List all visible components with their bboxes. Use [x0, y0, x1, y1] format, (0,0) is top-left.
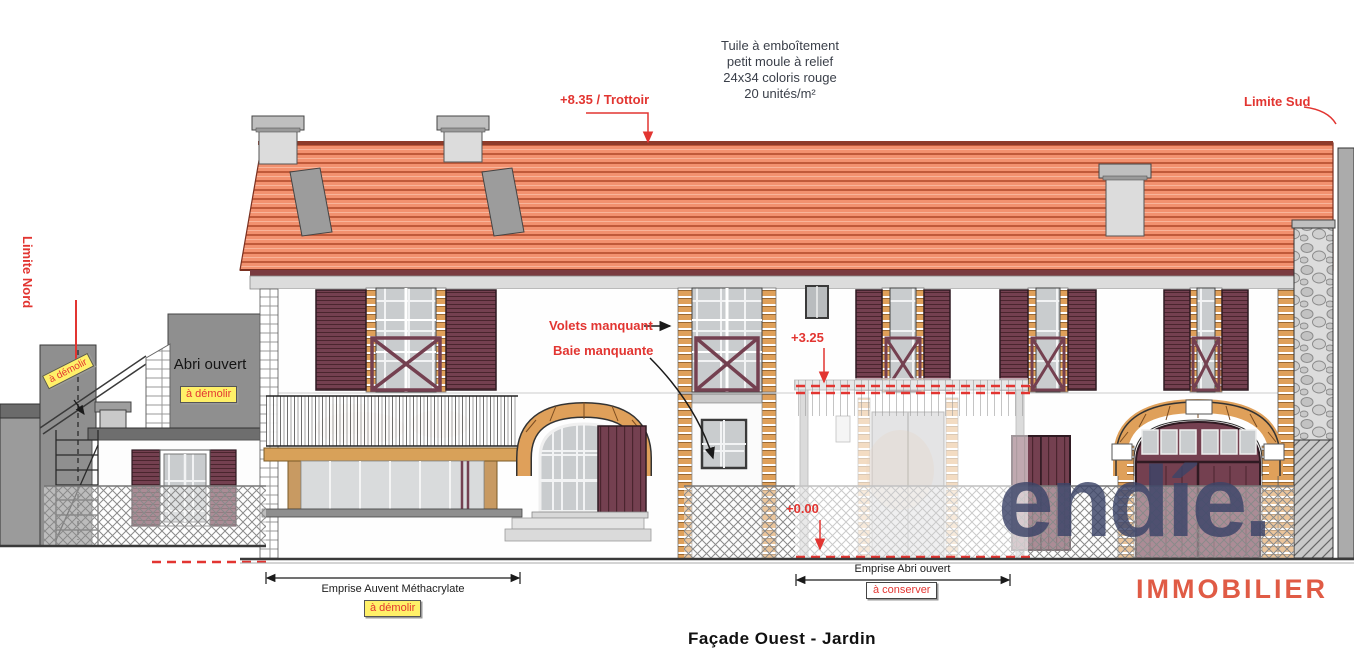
- abri-ouvert-label: Abri ouvert: [156, 356, 264, 373]
- elevation-sheet: Tuile à emboîtement petit moule à relief…: [0, 0, 1354, 653]
- level-floor-label: +3.25: [791, 330, 824, 345]
- stone-pillar: [1292, 220, 1335, 558]
- demolish-tag-annex: à démolir: [180, 386, 237, 403]
- missing-shutters-label: Volets manquant: [549, 318, 653, 333]
- roof-tile-note-line2: petit moule à relief: [700, 54, 860, 70]
- roof-tile-note: Tuile à emboîtement petit moule à relief…: [700, 38, 860, 102]
- missing-bay-label: Baie manquante: [553, 343, 653, 358]
- roof-tile-note-line4: 20 unités/m²: [700, 86, 860, 102]
- window-upper-5: [1164, 288, 1248, 392]
- awning-extent-label: Emprise Auvent Méthacrylate: [263, 583, 523, 595]
- chimney-right: [1099, 164, 1151, 236]
- neighbour-wall: [1338, 148, 1354, 558]
- roof-tile-note-line3: 24x34 coloris rouge: [700, 70, 860, 86]
- drawing-title: Façade Ouest - Jardin: [600, 629, 964, 649]
- boundary-north-label: Limite Nord: [20, 236, 35, 326]
- arched-window: [505, 402, 651, 541]
- window-upper-3: [856, 288, 950, 392]
- agency-logo-subtitle: IMMOBILIER: [1136, 574, 1328, 605]
- chimney-middle: [437, 116, 489, 162]
- veranda-awning: [262, 396, 522, 517]
- attic-vent: [806, 286, 828, 318]
- window-upper-4: [1000, 288, 1096, 392]
- keep-tag-shelter: à conserver: [866, 582, 937, 599]
- roof: [240, 141, 1333, 270]
- shelter-extent-label: Emprise Abri ouvert: [795, 563, 1010, 575]
- agency-logo-wordmark: endíe.: [998, 452, 1269, 552]
- window-upper-2-no-shutters: [678, 288, 776, 392]
- fence-left: [44, 486, 266, 546]
- cornice: [250, 270, 1302, 289]
- roof-tile-note-line1: Tuile à emboîtement: [700, 38, 860, 54]
- window-upper-1: [316, 288, 496, 392]
- level-ridge-label: +8.35 / Trottoir: [560, 92, 649, 107]
- demolish-tag-awning: à démolir: [364, 600, 421, 617]
- boundary-south-label: Limite Sud: [1244, 94, 1310, 109]
- chimney-left: [252, 116, 304, 164]
- level-ground-label: +0.00: [786, 501, 819, 516]
